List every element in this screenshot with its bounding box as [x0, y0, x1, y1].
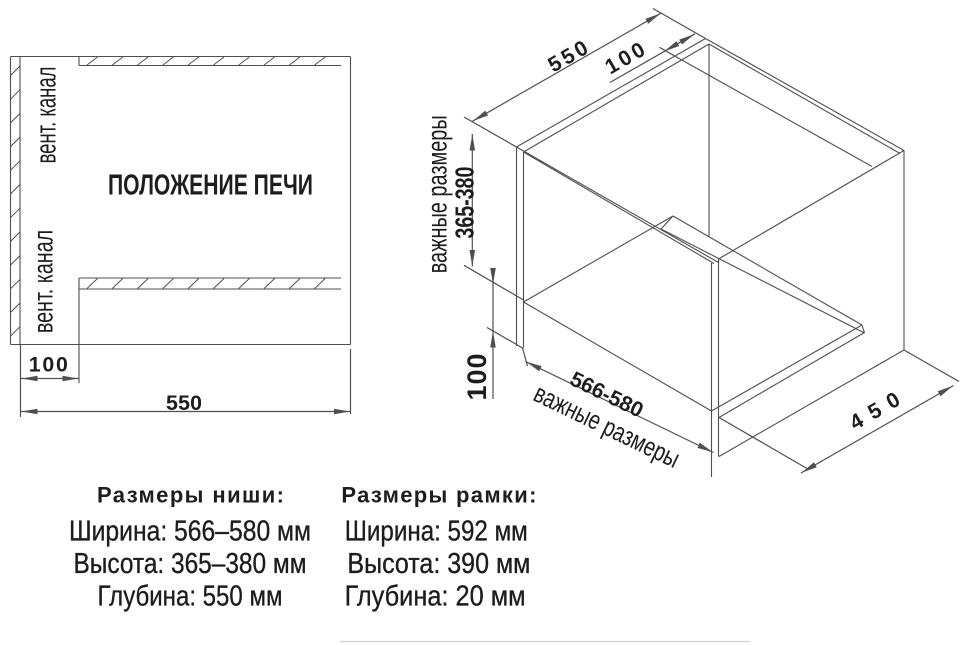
svg-text:100: 100 — [29, 353, 68, 377]
svg-text:450: 450 — [845, 387, 904, 435]
svg-text:Размеры ниши:: Размеры ниши: — [97, 483, 284, 508]
svg-text:Ширина: 592 мм: Ширина: 592 мм — [345, 516, 528, 548]
svg-text:Глубина: 550 мм: Глубина: 550 мм — [98, 581, 283, 613]
svg-text:550: 550 — [544, 36, 592, 78]
svg-text:365-380: 365-380 — [450, 167, 479, 239]
svg-text:Размеры рамки:: Размеры рамки: — [341, 483, 536, 508]
svg-text:550: 550 — [166, 391, 202, 415]
svg-text:Глубина: 20 мм: Глубина: 20 мм — [345, 581, 526, 613]
svg-text:вент. канал: вент. канал — [30, 67, 62, 164]
svg-text:Ширина: 566–580 мм: Ширина: 566–580 мм — [69, 516, 311, 548]
svg-text:вент. канал: вент. канал — [28, 230, 59, 333]
svg-text:ПОЛОЖЕНИЕ ПЕЧИ: ПОЛОЖЕНИЕ ПЕЧИ — [108, 170, 313, 202]
svg-text:Высота: 390 мм: Высота: 390 мм — [347, 548, 530, 580]
svg-text:Высота: 365–380 мм: Высота: 365–380 мм — [74, 548, 307, 580]
svg-text:100: 100 — [462, 354, 492, 401]
svg-text:важные размеры: важные размеры — [422, 115, 453, 273]
